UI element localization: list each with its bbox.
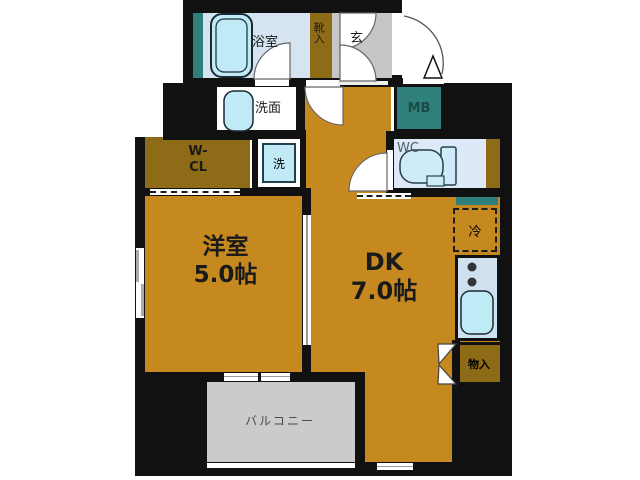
dk-label: DK 7.0帖 xyxy=(318,248,450,306)
entrance-label: 玄 xyxy=(350,31,363,47)
stove-burner-icon xyxy=(468,278,477,287)
wcl-line1: W- xyxy=(188,144,207,159)
bathroom-label: 浴室 xyxy=(252,35,278,51)
balcony-label: バルコニー xyxy=(205,380,355,463)
shoe-storage-label: 靴入 xyxy=(312,22,325,44)
toilet-base-icon xyxy=(427,176,444,186)
storage-bifold-door-icon xyxy=(438,344,456,364)
stove-burner-icon xyxy=(468,263,477,272)
western-room-name: 洋室 xyxy=(203,234,249,260)
western-room-size: 5.0帖 xyxy=(194,262,258,288)
washroom-door-arc xyxy=(305,87,343,125)
walk-in-closet-label: W- CL xyxy=(168,144,228,175)
floor-plan: MB 物入 冷 洗 xyxy=(0,0,640,480)
dk-name: DK xyxy=(365,248,404,276)
wc-label: WC xyxy=(397,141,419,157)
dk-size: 7.0帖 xyxy=(351,277,418,305)
kitchen-sink-icon xyxy=(461,291,493,334)
entry-door-stop-icon xyxy=(424,56,442,78)
shoe-cabinet-door-arc-bottom xyxy=(340,45,376,81)
wcl-line2: CL xyxy=(189,160,207,175)
storage-bifold-door-icon xyxy=(438,365,456,384)
washroom-label: 洗面 xyxy=(255,101,281,117)
wc-door-arc xyxy=(349,153,387,191)
western-room-label: 洋室 5.0帖 xyxy=(158,234,293,289)
washbasin-icon xyxy=(224,91,253,131)
